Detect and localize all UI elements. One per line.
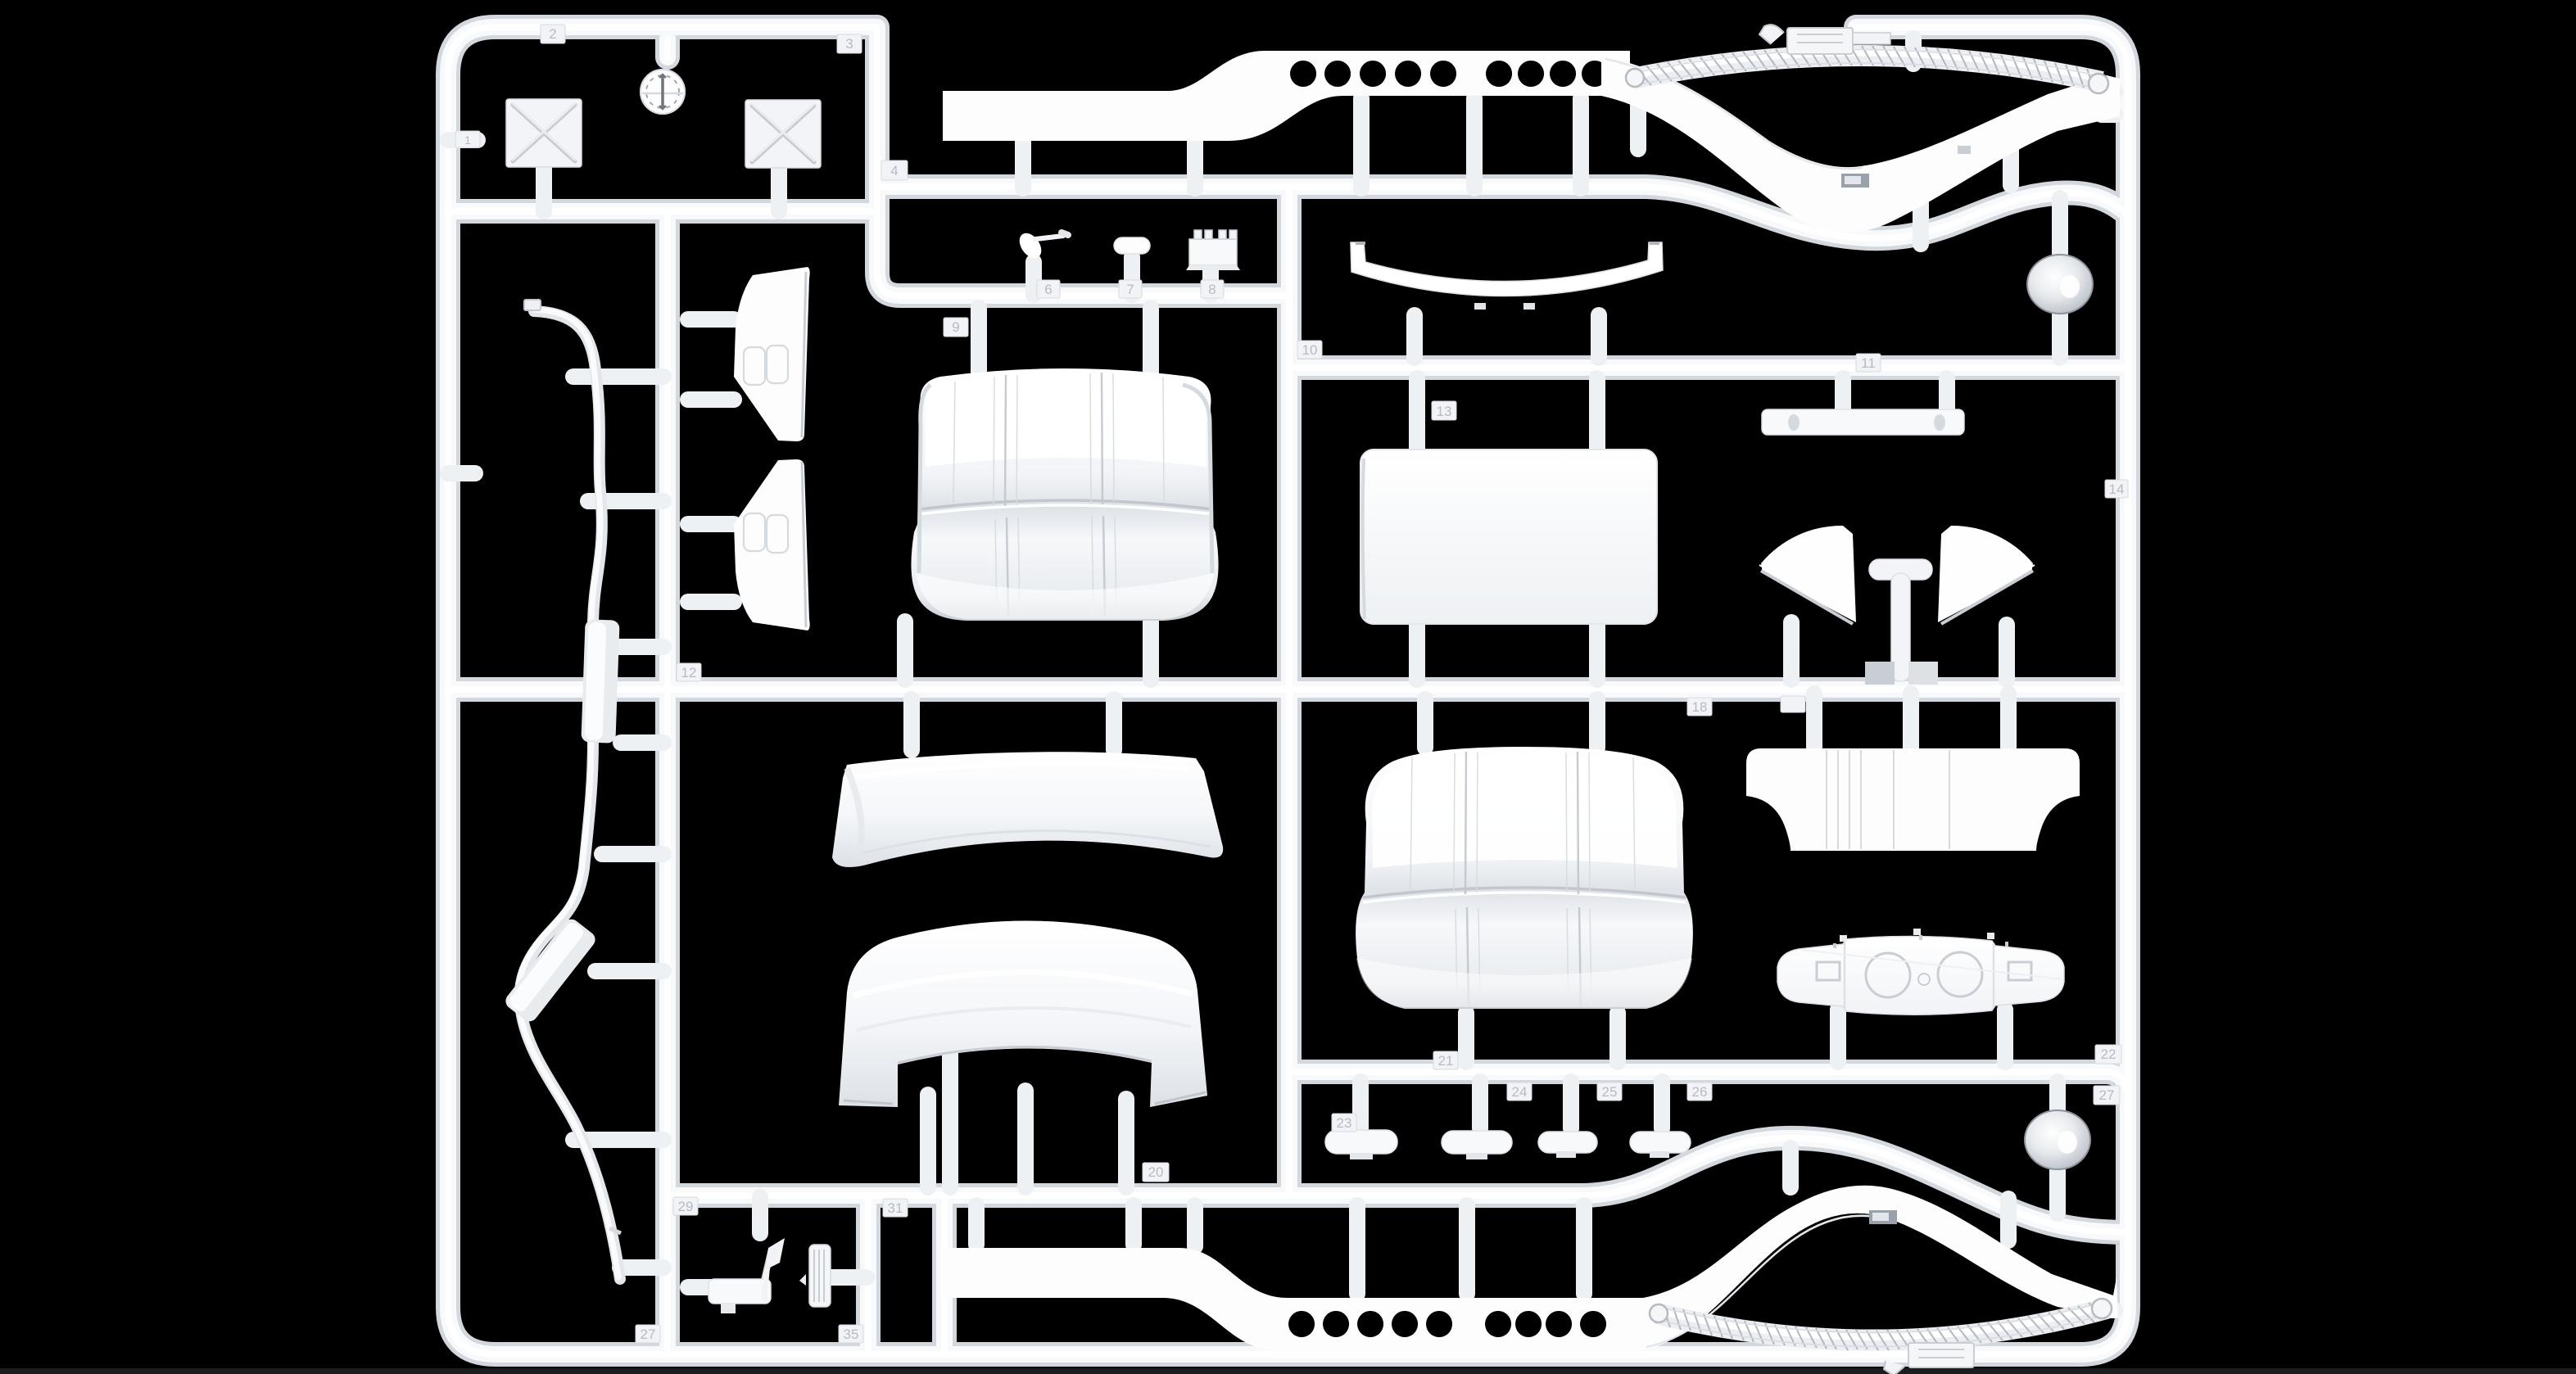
svg-text:18: 18 <box>1692 699 1708 715</box>
svg-text:24: 24 <box>1512 1084 1528 1100</box>
svg-text:35: 35 <box>844 1327 859 1342</box>
svg-text:8: 8 <box>1208 282 1216 297</box>
svg-text:27: 27 <box>2099 1087 2115 1103</box>
svg-text:23: 23 <box>1337 1115 1352 1131</box>
svg-text:25: 25 <box>1602 1084 1618 1100</box>
svg-text:3: 3 <box>845 36 853 52</box>
svg-text:21: 21 <box>1438 1053 1454 1069</box>
svg-text:9: 9 <box>952 319 959 335</box>
svg-text:12: 12 <box>681 665 697 680</box>
svg-text:27: 27 <box>641 1327 656 1342</box>
svg-text:11: 11 <box>1861 355 1876 371</box>
svg-text:20: 20 <box>1148 1164 1164 1180</box>
svg-text:26: 26 <box>1692 1084 1708 1100</box>
svg-text:6: 6 <box>1044 282 1052 297</box>
svg-text:2: 2 <box>549 26 556 42</box>
svg-text:31: 31 <box>888 1200 903 1216</box>
svg-text:29: 29 <box>678 1199 694 1214</box>
svg-text:14: 14 <box>2109 481 2125 497</box>
svg-text:1: 1 <box>464 133 471 147</box>
svg-text:4: 4 <box>890 163 898 179</box>
svg-text:10: 10 <box>1302 342 1318 358</box>
svg-text:22: 22 <box>2101 1046 2116 1062</box>
svg-text:7: 7 <box>1126 282 1134 297</box>
svg-text:13: 13 <box>1437 404 1452 419</box>
